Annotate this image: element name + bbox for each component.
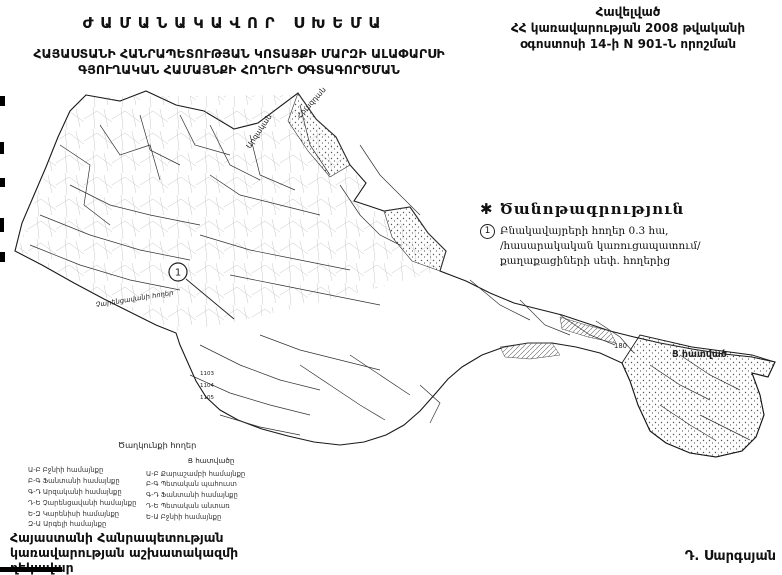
- cadastral-map: 1 Արզական Հրազդան Չարենցավանի հողեր Ծաղկ…: [0, 85, 782, 485]
- legend-column-right: Ց հատվածը Ա-Բ Քարաշամբի համայնքը Բ-Գ Պետ…: [146, 455, 276, 530]
- section-label-right: Ց հատված: [672, 349, 727, 360]
- legend-item: Գ-Դ Ֆանտանի համայնքը: [146, 490, 276, 501]
- parcel-mesh-texture: [18, 95, 438, 331]
- parcel-number-small-3: 1105: [200, 395, 214, 401]
- note-block: ✱Ծանոթագրություն 1 Բնակավայրերի հողեր 0.…: [480, 200, 772, 270]
- legend-item: Ե-Ա Բջնիի համայնքը: [146, 512, 276, 523]
- boundary-legend: Ա-Բ Բջնիի համայնքը Բ-Գ Ֆանտանի համայնքը …: [28, 455, 276, 530]
- footer-org-line-1: Հայաստանի Հանրապետության: [10, 530, 238, 545]
- appendix-line-3: օգոստոսի 14-ի N 901-Ն որոշման: [478, 36, 778, 52]
- note-item-1: 1 Բնակավայրերի հողեր 0.3 հա, /հասարակակա…: [480, 224, 772, 270]
- appendix-line-1: Հավելված: [478, 4, 778, 20]
- note-line-2: /հասարակական կառուցապատում/: [500, 239, 772, 254]
- circled-number-icon: 1: [480, 224, 495, 239]
- parcel-number-small-1: 1103: [200, 371, 214, 377]
- appendix-line-2: ՀՀ կառավարության 2008 թվականի: [478, 20, 778, 36]
- legend-item: Զ-Ա Արգելի համայնքը: [28, 519, 146, 530]
- legend-item: Բ-Գ Ֆանտանի համայնքը: [28, 476, 146, 487]
- note-line-3: քաղաքացիների սեփ. հողերից: [500, 254, 772, 269]
- appendix-block: Հավելված ՀՀ կառավարության 2008 թվականի օ…: [478, 4, 778, 53]
- legend-item: Ե-Զ Կարենիսի համայնքը: [28, 509, 146, 520]
- subtitle-line-1: ՀԱՅԱՍՏԱՆԻ ՀԱՆՐԱՊԵՏՈՒԹՅԱՆ ԿՈՏԱՅՔԻ ՄԱՐԶԻ Ա…: [0, 46, 478, 62]
- scanned-map-page: ԺԱՄԱՆԱԿԱՎՈՐ ՍԽԵՄԱ ՀԱՅԱՍՏԱՆԻ ՀԱՆՐԱՊԵՏՈՒԹՅ…: [0, 0, 782, 575]
- scan-artifact: [0, 142, 4, 154]
- parcel-number-small-2: 1104: [200, 383, 214, 389]
- page-title: ԺԱՄԱՆԱԿԱՎՈՐ ՍԽԵՄԱ: [0, 14, 470, 32]
- callout-number: 1: [175, 268, 181, 279]
- legend-item: Գ-Դ Արզականի համայնքը: [28, 487, 146, 498]
- footer-org-line-2: կառավարության աշխատակազմի: [10, 545, 238, 560]
- scan-artifact: [0, 567, 62, 572]
- scan-artifact: [0, 252, 5, 262]
- legend-item: Ա-Բ Բջնիի համայնքը: [28, 465, 146, 476]
- legend-item: Բ-Գ Պետական պահուստ: [146, 479, 276, 490]
- page-subtitle: ՀԱՅԱՍՏԱՆԻ ՀԱՆՐԱՊԵՏՈՒԹՅԱՆ ԿՈՏԱՅՔԻ ՄԱՐԶԻ Ա…: [0, 46, 478, 79]
- note-line-1: Բնակավայրերի հողեր 0.3 հա,: [500, 224, 772, 239]
- hatch-zone-neck: [500, 343, 560, 359]
- legend-item: Դ-Ե Չարենցավանի համայնքը: [28, 498, 146, 509]
- signature: Դ. Սարգսյան: [630, 549, 776, 564]
- note-title-text: Ծանոթագրություն: [500, 200, 685, 218]
- asterisk-icon: ✱: [480, 200, 494, 218]
- legend-section-header: Ց հատվածը: [146, 455, 276, 467]
- legend-column-left: Ա-Բ Բջնիի համայնքը Բ-Գ Ֆանտանի համայնքը …: [28, 455, 146, 530]
- scan-artifact: [0, 96, 5, 106]
- legend-item: Դ-Ե Պետական անտառ: [146, 501, 276, 512]
- note-title: ✱Ծանոթագրություն: [480, 200, 772, 218]
- lands-label-south: Ծաղկունքի հողեր: [118, 440, 196, 450]
- legend-item: Ա-Բ Քարաշամբի համայնքը: [146, 469, 276, 480]
- scan-artifact: [0, 218, 4, 232]
- parcel-number-180: 180: [614, 342, 627, 350]
- subtitle-line-2: ԳՅՈՒՂԱԿԱՆ ՀԱՄԱՅՆՔԻ ՀՈՂԵՐԻ ՕԳՏԱԳՈՐԾՄԱՆ: [0, 62, 478, 78]
- scan-artifact: [0, 178, 5, 187]
